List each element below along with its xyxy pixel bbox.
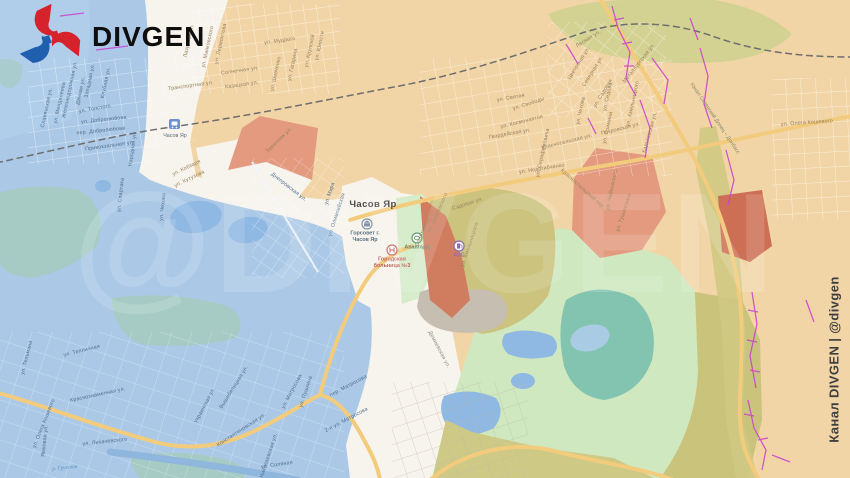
fuel-station-icon — [454, 241, 464, 251]
assault-zone-far-east — [718, 190, 772, 262]
train-station-icon — [169, 119, 180, 129]
station-label: Часов Яр — [163, 133, 187, 139]
poi-label-fuel: АЗС — [453, 253, 464, 259]
map-screenshot: Часов Яр Часов Яр р. Грузская Канал Севе… — [0, 0, 850, 478]
poi-label-hospital: Городская — [378, 257, 406, 263]
poi-label-city-hall: Горсовет г. — [350, 231, 380, 237]
pond-ua-3 — [95, 180, 111, 192]
city-hall-icon — [362, 219, 372, 229]
map-canvas: Часов Яр Часов Яр р. Грузская Канал Севе… — [0, 0, 850, 478]
channel-logo: DIVGEN — [14, 4, 205, 70]
poi-label-stadium: Авангард — [404, 245, 430, 251]
pinwheel-logo-icon — [14, 4, 88, 70]
hospital-icon — [387, 245, 397, 255]
channel-caption: Канал DIVGEN | @divgen — [827, 252, 842, 468]
logo-text: DIVGEN — [92, 21, 205, 53]
city-label: Часов Яр — [349, 199, 396, 210]
poi-label-city-hall: Часов Яр — [352, 237, 378, 243]
poi-label-hospital: больница №3 — [374, 262, 411, 269]
